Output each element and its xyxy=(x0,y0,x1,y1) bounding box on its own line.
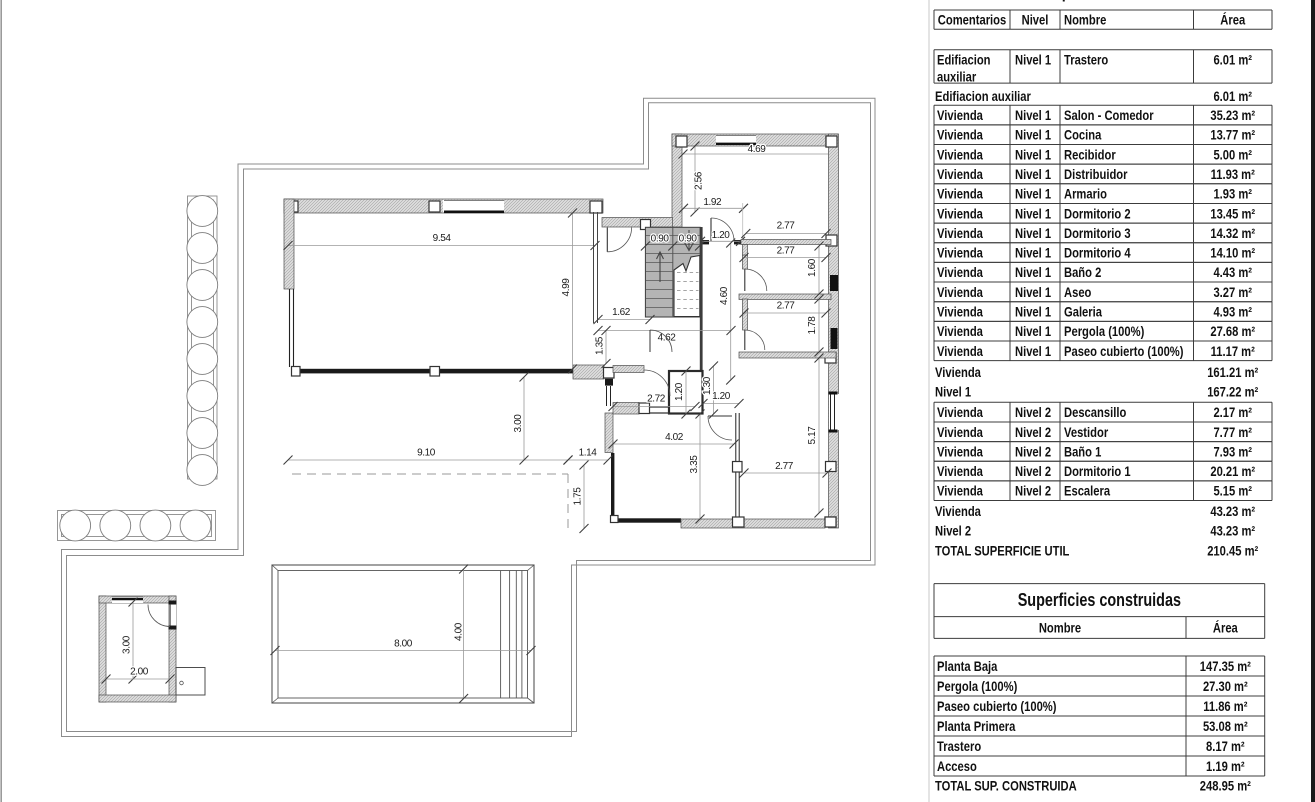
svg-text:Recibidor: Recibidor xyxy=(1064,146,1116,162)
svg-text:Nivel 1: Nivel 1 xyxy=(1015,166,1051,182)
svg-text:20.21 m²: 20.21 m² xyxy=(1210,463,1255,479)
svg-text:35.23 m²: 35.23 m² xyxy=(1210,107,1255,123)
svg-text:1.75: 1.75 xyxy=(573,487,584,506)
svg-text:3.35: 3.35 xyxy=(689,455,700,474)
svg-text:Vivienda: Vivienda xyxy=(935,364,981,380)
svg-text:2.72: 2.72 xyxy=(647,394,666,405)
svg-text:Vivienda: Vivienda xyxy=(937,264,983,280)
svg-text:1.20: 1.20 xyxy=(712,230,731,241)
svg-text:53.08 m²: 53.08 m² xyxy=(1203,718,1248,734)
svg-text:Nivel 1: Nivel 1 xyxy=(935,384,971,400)
svg-text:Edifiacion: Edifiacion xyxy=(937,52,991,68)
svg-text:1.93 m²: 1.93 m² xyxy=(1213,186,1252,202)
svg-text:4.43 m²: 4.43 m² xyxy=(1213,264,1252,280)
svg-text:Nivel 1: Nivel 1 xyxy=(1015,205,1051,221)
svg-text:27.68 m²: 27.68 m² xyxy=(1210,323,1255,339)
svg-text:Galeria: Galeria xyxy=(1064,304,1102,320)
svg-text:Superficies construidas: Superficies construidas xyxy=(1018,590,1181,610)
svg-text:Nivel 1: Nivel 1 xyxy=(1015,52,1051,68)
svg-text:210.45 m²: 210.45 m² xyxy=(1207,542,1258,558)
svg-text:Vivienda: Vivienda xyxy=(937,127,983,143)
svg-text:1.78: 1.78 xyxy=(807,316,818,335)
svg-text:7.93 m²: 7.93 m² xyxy=(1213,443,1252,459)
svg-text:7.77 m²: 7.77 m² xyxy=(1213,424,1252,440)
svg-text:Vivienda: Vivienda xyxy=(937,107,983,123)
svg-text:8.00: 8.00 xyxy=(394,639,413,650)
svg-text:Nivel: Nivel xyxy=(1022,12,1049,28)
svg-text:6.01 m²: 6.01 m² xyxy=(1213,52,1252,68)
svg-text:2.77: 2.77 xyxy=(777,301,796,312)
svg-text:1.92: 1.92 xyxy=(703,197,722,208)
svg-text:43.23 m²: 43.23 m² xyxy=(1210,523,1255,539)
svg-text:Pergola (100%): Pergola (100%) xyxy=(1064,323,1144,339)
svg-text:Vivienda: Vivienda xyxy=(937,343,983,359)
svg-text:Nivel 1: Nivel 1 xyxy=(1015,264,1051,280)
svg-text:2.17 m²: 2.17 m² xyxy=(1213,404,1252,420)
svg-text:Armario: Armario xyxy=(1064,186,1107,202)
svg-text:Escalera: Escalera xyxy=(1064,483,1110,499)
svg-text:Área: Área xyxy=(1213,620,1238,636)
svg-text:5.17: 5.17 xyxy=(807,426,818,445)
svg-text:Cocina: Cocina xyxy=(1064,127,1101,143)
svg-text:Distribuidor: Distribuidor xyxy=(1064,166,1128,182)
svg-text:11.17 m²: 11.17 m² xyxy=(1211,343,1255,359)
svg-text:Dormitorio 2: Dormitorio 2 xyxy=(1064,205,1131,221)
svg-text:11.86 m²: 11.86 m² xyxy=(1203,698,1247,714)
svg-text:147.35 m²: 147.35 m² xyxy=(1200,658,1251,674)
svg-text:Planta Primera: Planta Primera xyxy=(937,718,1016,734)
svg-text:Nivel 1: Nivel 1 xyxy=(1015,304,1051,320)
svg-text:Vivienda: Vivienda xyxy=(937,245,983,261)
svg-text:Trastero: Trastero xyxy=(1064,52,1108,68)
svg-text:Dormitorio 1: Dormitorio 1 xyxy=(1064,463,1131,479)
svg-text:Vivienda: Vivienda xyxy=(937,323,983,339)
svg-text:Paseo cubierto (100%): Paseo cubierto (100%) xyxy=(1064,343,1184,359)
svg-text:Vivienda: Vivienda xyxy=(937,225,983,241)
svg-text:Nivel 1: Nivel 1 xyxy=(1015,107,1051,123)
svg-text:Nivel 2: Nivel 2 xyxy=(935,523,971,539)
svg-text:3.27 m²: 3.27 m² xyxy=(1213,284,1252,300)
svg-text:1.19 m²: 1.19 m² xyxy=(1206,758,1245,774)
svg-text:5.15 m²: 5.15 m² xyxy=(1213,483,1252,499)
svg-text:Nivel 2: Nivel 2 xyxy=(1015,463,1051,479)
svg-text:4.02: 4.02 xyxy=(665,432,684,443)
svg-text:auxiliar: auxiliar xyxy=(937,69,977,85)
svg-text:Vivienda: Vivienda xyxy=(937,186,983,202)
svg-text:Acceso: Acceso xyxy=(937,758,977,774)
svg-text:Vivienda: Vivienda xyxy=(937,146,983,162)
svg-text:Baño 2: Baño 2 xyxy=(1064,264,1101,280)
svg-text:Salon - Comedor: Salon - Comedor xyxy=(1064,107,1154,123)
svg-text:27.30 m²: 27.30 m² xyxy=(1203,678,1248,694)
svg-text:Nivel 1: Nivel 1 xyxy=(1015,323,1051,339)
svg-text:Nombre: Nombre xyxy=(1064,12,1106,28)
svg-text:Nivel 2: Nivel 2 xyxy=(1015,404,1051,420)
svg-text:3.00: 3.00 xyxy=(513,414,524,433)
svg-text:Nivel 1: Nivel 1 xyxy=(1015,343,1051,359)
svg-text:Nivel 1: Nivel 1 xyxy=(1015,146,1051,162)
svg-text:Edifiacion auxiliar: Edifiacion auxiliar xyxy=(935,88,1031,104)
svg-text:Nivel 2: Nivel 2 xyxy=(1015,443,1051,459)
svg-text:Vivienda: Vivienda xyxy=(937,463,983,479)
svg-text:Nivel 1: Nivel 1 xyxy=(1015,127,1051,143)
svg-text:1.20: 1.20 xyxy=(712,391,731,402)
svg-text:TOTAL SUPERFICIE UTIL: TOTAL SUPERFICIE UTIL xyxy=(935,542,1070,558)
svg-text:Nivel 2: Nivel 2 xyxy=(1015,424,1051,440)
svg-text:Planta Baja: Planta Baja xyxy=(937,658,998,674)
svg-text:9.10: 9.10 xyxy=(417,448,436,459)
svg-text:Vivienda: Vivienda xyxy=(937,404,983,420)
svg-text:14.10 m²: 14.10 m² xyxy=(1210,245,1255,261)
svg-text:248.95 m²: 248.95 m² xyxy=(1200,778,1251,794)
svg-text:161.21 m²: 161.21 m² xyxy=(1207,364,1258,380)
svg-text:4.99: 4.99 xyxy=(561,278,572,297)
svg-text:Vivienda: Vivienda xyxy=(937,304,983,320)
svg-text:1.60: 1.60 xyxy=(807,258,818,277)
svg-text:Nivel 2: Nivel 2 xyxy=(1015,483,1051,499)
svg-text:2.56: 2.56 xyxy=(694,171,705,190)
svg-text:2.77: 2.77 xyxy=(777,221,796,232)
svg-text:2.77: 2.77 xyxy=(775,461,794,472)
svg-text:4.60: 4.60 xyxy=(719,286,730,305)
svg-text:2.00: 2.00 xyxy=(130,667,149,678)
svg-text:5.00 m²: 5.00 m² xyxy=(1213,146,1252,162)
svg-text:Vestidor: Vestidor xyxy=(1064,424,1109,440)
svg-text:Aseo: Aseo xyxy=(1064,284,1091,300)
svg-text:1.20: 1.20 xyxy=(674,382,685,401)
svg-text:Nombre: Nombre xyxy=(1039,620,1081,636)
svg-text:1.14: 1.14 xyxy=(579,448,598,459)
svg-text:6.01 m²: 6.01 m² xyxy=(1213,88,1252,104)
svg-text:4.69: 4.69 xyxy=(748,144,767,155)
svg-text:Vivienda: Vivienda xyxy=(937,284,983,300)
svg-text:14.32 m²: 14.32 m² xyxy=(1210,225,1255,241)
svg-text:Trastero: Trastero xyxy=(937,738,981,754)
svg-text:4.00: 4.00 xyxy=(453,622,464,641)
svg-text:3.00: 3.00 xyxy=(122,635,133,654)
svg-text:TOTAL SUP. CONSTRUIDA: TOTAL SUP. CONSTRUIDA xyxy=(935,778,1077,794)
svg-text:Descansillo: Descansillo xyxy=(1064,404,1126,420)
svg-text:1.62: 1.62 xyxy=(612,307,631,318)
svg-text:2.77: 2.77 xyxy=(777,246,796,257)
svg-text:13.77 m²: 13.77 m² xyxy=(1210,127,1255,143)
svg-text:Vivienda: Vivienda xyxy=(935,503,981,519)
svg-text:Vivienda: Vivienda xyxy=(937,205,983,221)
svg-text:Vivienda: Vivienda xyxy=(937,483,983,499)
svg-text:167.22 m²: 167.22 m² xyxy=(1207,384,1258,400)
svg-text:4.93 m²: 4.93 m² xyxy=(1213,304,1252,320)
svg-text:Vivienda: Vivienda xyxy=(937,166,983,182)
svg-text:Área: Área xyxy=(1220,12,1245,28)
svg-text:Paseo cubierto (100%): Paseo cubierto (100%) xyxy=(937,698,1057,714)
svg-text:9.54: 9.54 xyxy=(433,233,452,244)
svg-text:Dormitorio 4: Dormitorio 4 xyxy=(1064,245,1131,261)
svg-text:Comentarios: Comentarios xyxy=(938,12,1007,28)
svg-text:Nivel 1: Nivel 1 xyxy=(1015,186,1051,202)
svg-text:Nivel 1: Nivel 1 xyxy=(1015,284,1051,300)
svg-text:Vivienda: Vivienda xyxy=(937,424,983,440)
svg-text:11.93 m²: 11.93 m² xyxy=(1211,166,1255,182)
svg-text:43.23 m²: 43.23 m² xyxy=(1210,503,1255,519)
svg-text:0.90: 0.90 xyxy=(679,234,698,245)
svg-text:8.17 m²: 8.17 m² xyxy=(1206,738,1245,754)
svg-text:Nivel 1: Nivel 1 xyxy=(1015,245,1051,261)
svg-text:1.35: 1.35 xyxy=(595,336,606,355)
svg-text:Vivienda: Vivienda xyxy=(937,443,983,459)
svg-text:Dormitorio 3: Dormitorio 3 xyxy=(1064,225,1131,241)
svg-text:Superficies utiles: Superficies utiles xyxy=(1043,0,1162,2)
svg-text:0.90: 0.90 xyxy=(651,234,670,245)
svg-text:13.45 m²: 13.45 m² xyxy=(1210,205,1255,221)
svg-text:Baño 1: Baño 1 xyxy=(1064,443,1101,459)
svg-text:Pergola (100%): Pergola (100%) xyxy=(937,678,1017,694)
svg-text:Nivel 1: Nivel 1 xyxy=(1015,225,1051,241)
